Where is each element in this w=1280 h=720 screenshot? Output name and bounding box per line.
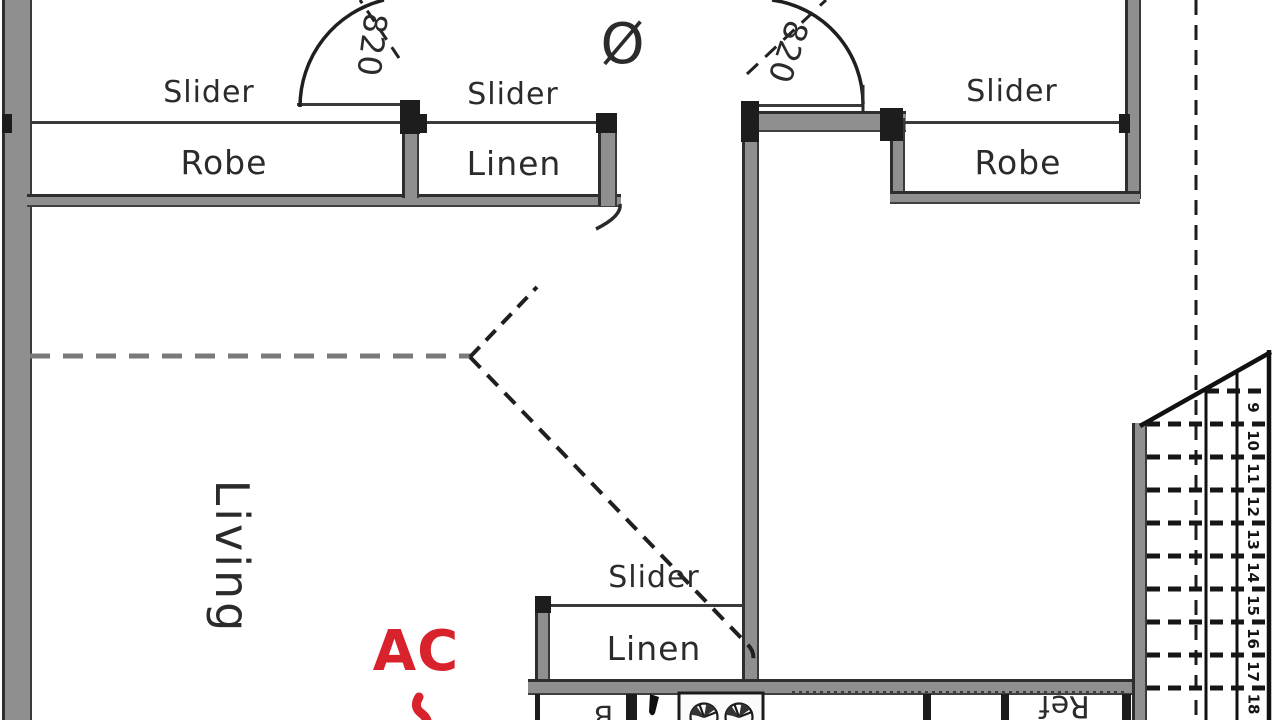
label-linen-top: Linen — [455, 139, 573, 187]
stair-step-number: 9 — [1237, 391, 1270, 424]
stair-step-number: 13 — [1237, 523, 1270, 556]
label-partial-letter: B — [588, 701, 618, 720]
label-living: Living — [207, 477, 257, 637]
stair-step-number: 18 — [1238, 688, 1270, 720]
ceiling-fork-upper — [470, 287, 537, 357]
label-slider-top-left: Slider — [148, 72, 270, 112]
door-left-dimension: 820 — [353, 8, 391, 81]
label-ref: Ref — [1029, 691, 1099, 720]
stair-step-number: 10 — [1237, 424, 1270, 457]
stair-step-number: 17 — [1237, 655, 1270, 688]
stair-step-number: 11 — [1237, 457, 1270, 490]
label-robe-left: Robe — [162, 139, 286, 185]
diameter-symbol: Ø — [592, 10, 654, 78]
stair-step-number: 12 — [1237, 490, 1270, 523]
ac-arrow — [416, 697, 427, 720]
stair-step-number: 16 — [1237, 622, 1270, 655]
label-robe-right: Robe — [958, 139, 1078, 185]
ceiling-fork-lower — [470, 357, 753, 668]
stair-step-number: 15 — [1237, 589, 1270, 622]
stair-step-number: 14 — [1237, 556, 1270, 589]
utensil-icon — [649, 694, 659, 715]
label-slider-top-right: Slider — [950, 71, 1074, 111]
label-slider-bottom: Slider — [592, 558, 716, 596]
label-linen-bottom: Linen — [596, 626, 712, 670]
wall-end-hook — [596, 204, 620, 229]
label-slider-top-mid: Slider — [452, 74, 574, 114]
label-ac: AC — [366, 618, 466, 684]
floor-plan: Slider Robe Slider Linen Slider Robe Sli… — [0, 0, 1280, 720]
